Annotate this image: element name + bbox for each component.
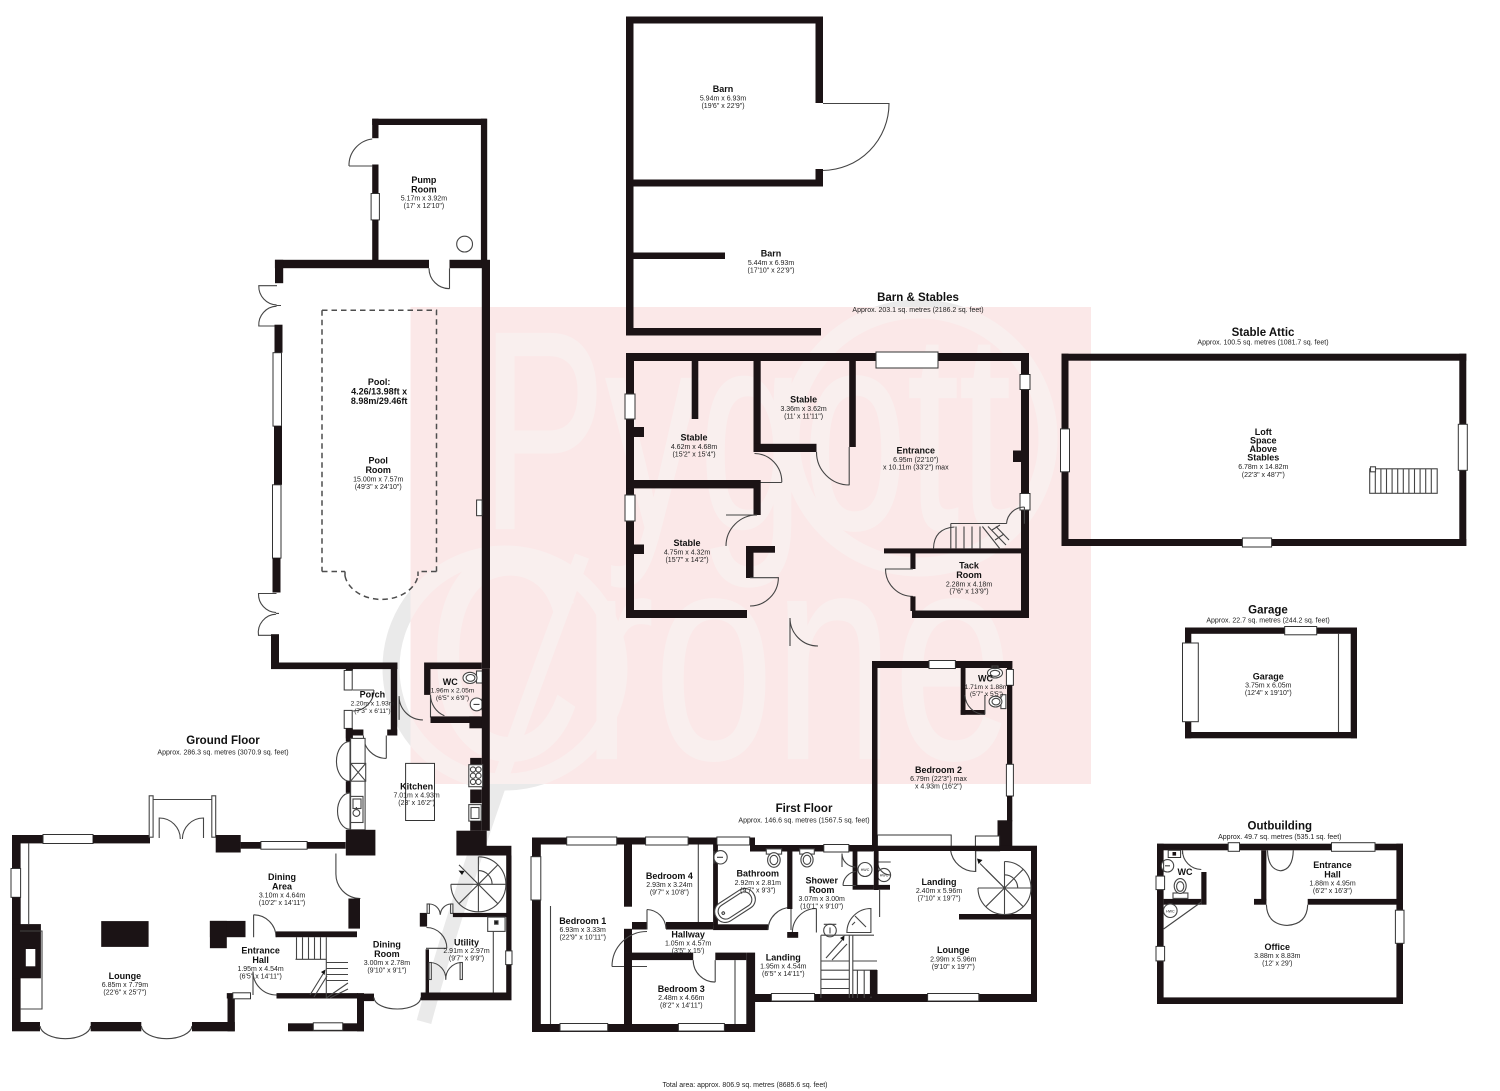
svg-text:(7'3" x 6'11"): (7'3" x 6'11") (354, 708, 390, 715)
svg-text:(9'10" x 9'1"): (9'10" x 9'1") (367, 967, 406, 974)
svg-text:Room: Room (374, 949, 400, 959)
svg-text:Bathroom: Bathroom (737, 869, 780, 879)
svg-text:(9'10" x 19'7"): (9'10" x 19'7") (932, 964, 975, 971)
svg-text:Bedroom 1: Bedroom 1 (559, 916, 606, 926)
svg-text:5.94m x 6.93m: 5.94m x 6.93m (700, 96, 746, 103)
svg-text:(10'2" x 14'11"): (10'2" x 14'11") (259, 900, 305, 907)
svg-text:(15'7" x 14'2"): (15'7" x 14'2") (665, 557, 708, 564)
svg-text:Shower: Shower (805, 876, 838, 886)
svg-text:(17' x 12'10"): (17' x 12'10") (404, 203, 445, 210)
svg-text:3.75m x 6.05m: 3.75m x 6.05m (1245, 683, 1291, 690)
svg-text:2.20m x 1.93m: 2.20m x 1.93m (351, 700, 395, 707)
svg-text:HWC: HWC (1166, 909, 1175, 913)
svg-text:Tack: Tack (959, 561, 980, 571)
svg-text:Entrance: Entrance (897, 446, 936, 456)
svg-text:1.88m x 4.95m: 1.88m x 4.95m (1309, 880, 1355, 887)
svg-text:(6'2" x 16'3"): (6'2" x 16'3") (1313, 888, 1352, 895)
svg-text:1.95m x 4.54m: 1.95m x 4.54m (760, 964, 806, 971)
svg-text:Stable: Stable (673, 538, 700, 548)
svg-text:Room: Room (956, 570, 982, 580)
svg-text:Hall: Hall (1324, 869, 1341, 879)
svg-text:Ground Floor: Ground Floor (186, 735, 260, 747)
svg-text:First Floor: First Floor (776, 803, 833, 815)
svg-text:(5'7" x 5'5"): (5'7" x 5'5") (970, 691, 1003, 698)
svg-text:6.95m (22'10"): 6.95m (22'10") (893, 457, 938, 464)
svg-text:(23' x 16'2"): (23' x 16'2") (398, 800, 435, 807)
svg-text:4.62m x 4.68m: 4.62m x 4.68m (671, 444, 717, 451)
svg-text:Stable: Stable (790, 395, 817, 405)
svg-text:Lounge: Lounge (937, 945, 970, 955)
svg-text:Barn & Stables: Barn & Stables (877, 292, 959, 304)
svg-text:3.07m x 3.00m: 3.07m x 3.00m (799, 896, 845, 903)
svg-text:Office: Office (1265, 942, 1291, 952)
svg-text:Dining: Dining (268, 872, 296, 882)
svg-text:3.88m x 8.83m: 3.88m x 8.83m (1254, 953, 1300, 960)
svg-text:Room: Room (411, 185, 437, 195)
svg-text:x 10.11m (33'2") max: x 10.11m (33'2") max (883, 465, 949, 472)
svg-text:6.78m x 14.82m: 6.78m x 14.82m (1238, 464, 1288, 471)
svg-text:(22'6" x 25'7"): (22'6" x 25'7") (103, 990, 146, 997)
svg-text:Approx. 22.7 sq. metres (244.2: Approx. 22.7 sq. metres (244.2 sq. feet) (1206, 618, 1329, 625)
svg-text:2.99m x 5.96m: 2.99m x 5.96m (930, 957, 976, 964)
svg-text:HWC: HWC (861, 868, 870, 872)
svg-text:2.40m x 5.96m: 2.40m x 5.96m (916, 888, 962, 895)
svg-text:Pump: Pump (411, 175, 437, 185)
svg-text:8.98m/29.46ft: 8.98m/29.46ft (351, 396, 408, 406)
svg-text:(49'3" x 24'10"): (49'3" x 24'10") (355, 484, 402, 491)
svg-text:(12' x 29'): (12' x 29') (1262, 961, 1292, 968)
svg-text:Garage: Garage (1253, 671, 1284, 681)
svg-text:6.93m x 3.33m: 6.93m x 3.33m (560, 927, 606, 934)
svg-text:Barn: Barn (761, 249, 782, 259)
svg-text:6.79m (22'3") max: 6.79m (22'3") max (910, 776, 967, 783)
svg-text:Area: Area (272, 882, 293, 892)
svg-text:(6'5" x 14'11"): (6'5" x 14'11") (239, 973, 282, 980)
svg-text:1.71m x 1.88m: 1.71m x 1.88m (965, 684, 1009, 691)
svg-text:Dining: Dining (373, 939, 401, 949)
svg-text:Stable: Stable (680, 433, 707, 443)
svg-text:3.00m x 2.78m: 3.00m x 2.78m (364, 960, 410, 967)
svg-text:(15'2" x 15'4"): (15'2" x 15'4") (672, 452, 715, 459)
svg-text:WC: WC (978, 673, 993, 683)
svg-text:1.96m x 2.05m: 1.96m x 2.05m (431, 688, 475, 695)
svg-text:(9'7" x 9'3"): (9'7" x 9'3") (740, 887, 775, 894)
svg-text:Room: Room (809, 885, 835, 895)
svg-text:Approx. 146.6 sq. metres (1567: Approx. 146.6 sq. metres (1567.5 sq. fee… (738, 818, 869, 825)
svg-text:Entrance: Entrance (1313, 860, 1352, 870)
svg-text:Stable Attic: Stable Attic (1232, 327, 1295, 339)
svg-text:Pool: Pool (368, 456, 388, 466)
svg-text:Pool:: Pool: (368, 377, 391, 387)
svg-text:Hall: Hall (252, 955, 269, 965)
svg-text:Bedroom 2: Bedroom 2 (915, 765, 962, 775)
svg-text:Lounge: Lounge (109, 971, 142, 981)
svg-text:(8'2" x 14'11"): (8'2" x 14'11") (660, 1002, 703, 1009)
svg-text:(12'4" x 19'10"): (12'4" x 19'10") (1245, 690, 1292, 697)
svg-text:Bedroom 4: Bedroom 4 (646, 871, 693, 881)
svg-text:1.05m x 4.57m: 1.05m x 4.57m (665, 940, 711, 947)
svg-text:Entrance: Entrance (241, 945, 280, 955)
svg-text:(22'9" x 10'11"): (22'9" x 10'11") (559, 935, 605, 942)
svg-text:(6'5" x 6'9"): (6'5" x 6'9") (436, 695, 469, 702)
svg-text:2.28m x 4.18m: 2.28m x 4.18m (946, 581, 992, 588)
svg-text:(7'10" x 19'7"): (7'10" x 19'7") (917, 896, 960, 903)
svg-text:2.48m x 4.66m: 2.48m x 4.66m (658, 995, 704, 1002)
svg-text:(9'7" x 10'8"): (9'7" x 10'8") (650, 890, 689, 897)
svg-text:15.00m x 7.57m: 15.00m x 7.57m (353, 476, 403, 483)
svg-text:5.17m x 3.92m: 5.17m x 3.92m (401, 196, 447, 203)
svg-text:Landing: Landing (922, 877, 957, 887)
svg-text:Approx. 49.7 sq. metres (535.1: Approx. 49.7 sq. metres (535.1 sq. feet) (1218, 834, 1341, 841)
svg-text:(7'6" x 13'9"): (7'6" x 13'9") (949, 589, 988, 596)
svg-text:Porch: Porch (360, 689, 386, 699)
svg-text:6.85m x 7.79m: 6.85m x 7.79m (102, 982, 148, 989)
svg-text:7.01m x 4.93m: 7.01m x 4.93m (393, 793, 439, 800)
svg-text:WC: WC (443, 677, 458, 687)
svg-text:4.26/13.98ft x: 4.26/13.98ft x (351, 387, 407, 397)
svg-text:(11' x 11'11"): (11' x 11'11") (784, 414, 823, 421)
svg-text:Utility: Utility (454, 937, 479, 947)
svg-text:(22'3" x 48'7"): (22'3" x 48'7") (1242, 472, 1285, 479)
svg-text:Approx. 286.3 sq. metres (3070: Approx. 286.3 sq. metres (3070.9 sq. fee… (157, 750, 288, 757)
svg-text:2.91m x 2.97m: 2.91m x 2.97m (443, 948, 489, 955)
svg-text:4.75m x 4.32m: 4.75m x 4.32m (664, 550, 710, 557)
svg-text:Outbuilding: Outbuilding (1248, 821, 1313, 833)
svg-text:Landing: Landing (766, 953, 801, 963)
svg-text:Kitchen: Kitchen (400, 782, 433, 792)
svg-text:Room: Room (365, 465, 391, 475)
svg-text:Total area: approx. 806.9 sq.: Total area: approx. 806.9 sq. metres (86… (663, 1082, 828, 1089)
svg-text:(6'5" x 14'11"): (6'5" x 14'11") (762, 971, 805, 978)
svg-text:(9'7" x 9'9"): (9'7" x 9'9") (449, 956, 484, 963)
svg-text:x 4.93m (16'2"): x 4.93m (16'2") (915, 783, 962, 790)
svg-text:Garage: Garage (1248, 605, 1288, 617)
svg-text:2.93m x 3.24m: 2.93m x 3.24m (646, 882, 692, 889)
svg-text:5.44m x 6.93m: 5.44m x 6.93m (748, 260, 794, 267)
svg-text:(19'6" x 22'9"): (19'6" x 22'9") (701, 103, 744, 110)
svg-text:3.10m x 4.64m: 3.10m x 4.64m (259, 893, 305, 900)
svg-text:(17'10" x 22'9"): (17'10" x 22'9") (748, 268, 795, 275)
svg-text:Approx. 100.5 sq. metres (1081: Approx. 100.5 sq. metres (1081.7 sq. fee… (1197, 340, 1328, 347)
svg-text:Stables: Stables (1247, 453, 1279, 463)
svg-text:1.95m x 4.54m: 1.95m x 4.54m (237, 966, 283, 973)
svg-text:Hallway: Hallway (671, 930, 705, 940)
svg-text:Approx. 203.1 sq. metres (2186: Approx. 203.1 sq. metres (2186.2 sq. fee… (852, 307, 983, 314)
svg-text:(3'5" x 15'): (3'5" x 15') (672, 948, 705, 955)
svg-text:Bedroom 3: Bedroom 3 (658, 984, 705, 994)
svg-text:Barn: Barn (713, 84, 734, 94)
svg-text:(10'1" x 9'10"): (10'1" x 9'10") (800, 903, 843, 910)
svg-text:WC: WC (1178, 867, 1193, 877)
svg-text:3.36m x 3.62m: 3.36m x 3.62m (780, 406, 826, 413)
svg-text:2.92m x 2.81m: 2.92m x 2.81m (735, 880, 781, 887)
